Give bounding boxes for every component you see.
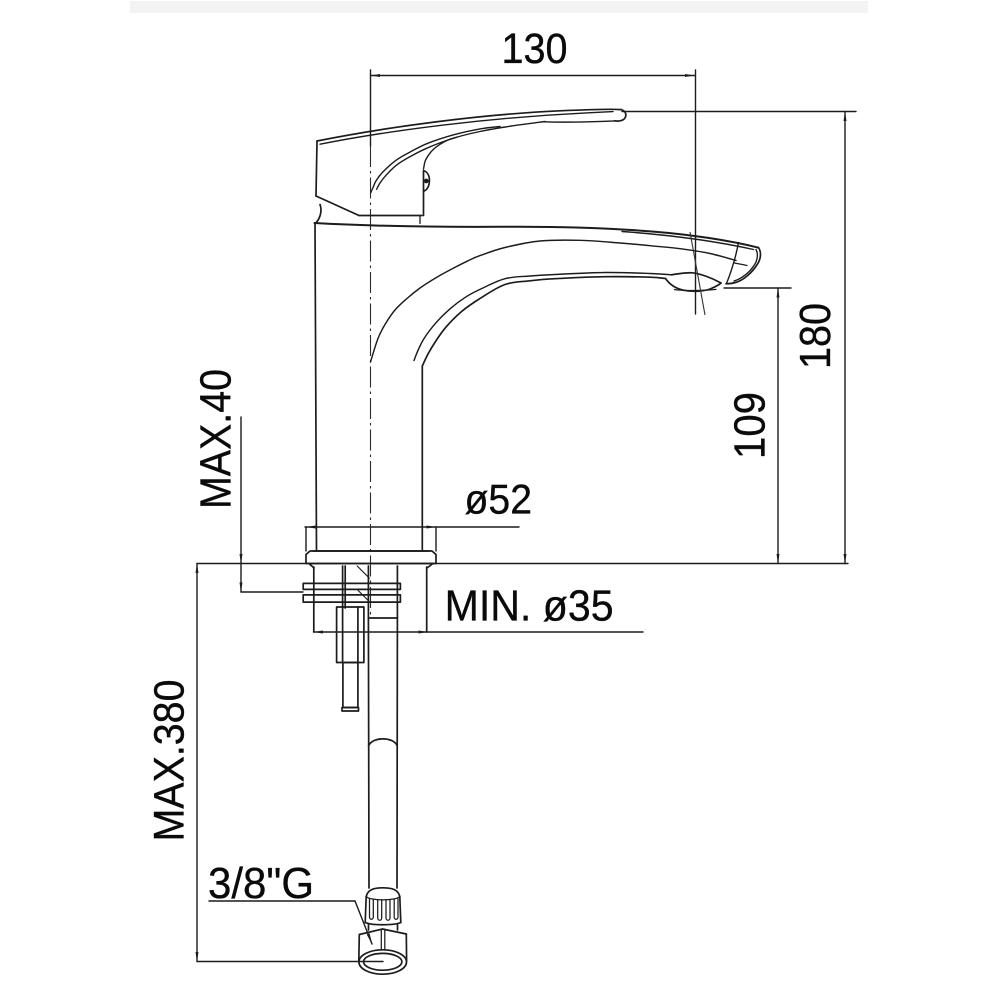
svg-text:130: 130 bbox=[502, 26, 568, 73]
svg-text:3/8"G: 3/8"G bbox=[208, 859, 314, 908]
svg-text:MAX.40: MAX.40 bbox=[192, 369, 241, 509]
svg-text:180: 180 bbox=[792, 303, 840, 369]
svg-text:ø52: ø52 bbox=[465, 476, 533, 523]
svg-text:109: 109 bbox=[727, 392, 775, 459]
svg-text:MAX.380: MAX.380 bbox=[147, 680, 194, 842]
svg-text:MIN. ø35: MIN. ø35 bbox=[445, 582, 614, 631]
